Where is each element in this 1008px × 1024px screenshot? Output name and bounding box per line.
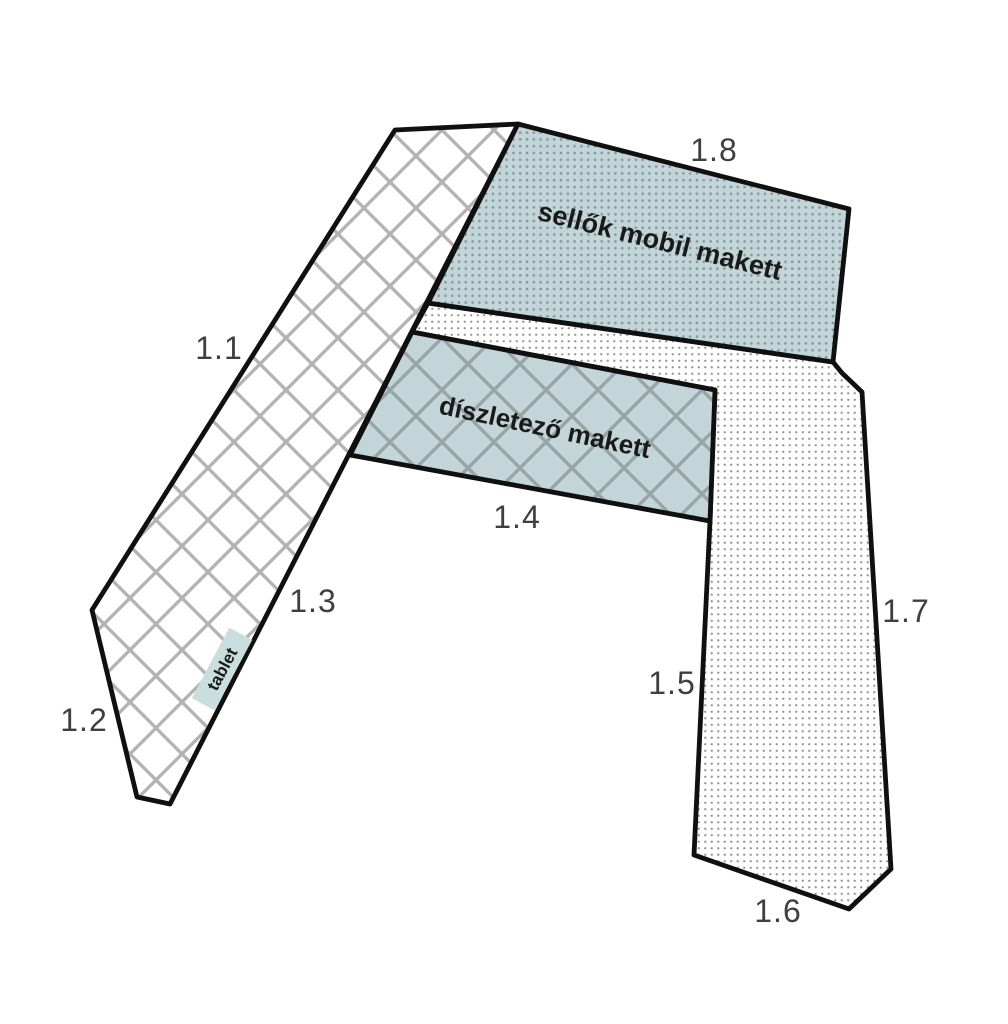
floor-plan-canvas: tablet sellők mobil makett díszletező ma… (0, 0, 1008, 1024)
area-label-1-6: 1.6 (754, 893, 801, 929)
area-label-1-1: 1.1 (195, 330, 242, 366)
area-label-1-3: 1.3 (289, 583, 336, 619)
floor-plan-svg: tablet sellők mobil makett díszletező ma… (0, 0, 1008, 1024)
area-label-1-7: 1.7 (882, 593, 929, 629)
area-label-1-5: 1.5 (648, 665, 695, 701)
area-label-1-8: 1.8 (690, 132, 737, 168)
area-label-1-2: 1.2 (60, 702, 107, 738)
area-label-1-4: 1.4 (493, 499, 540, 535)
